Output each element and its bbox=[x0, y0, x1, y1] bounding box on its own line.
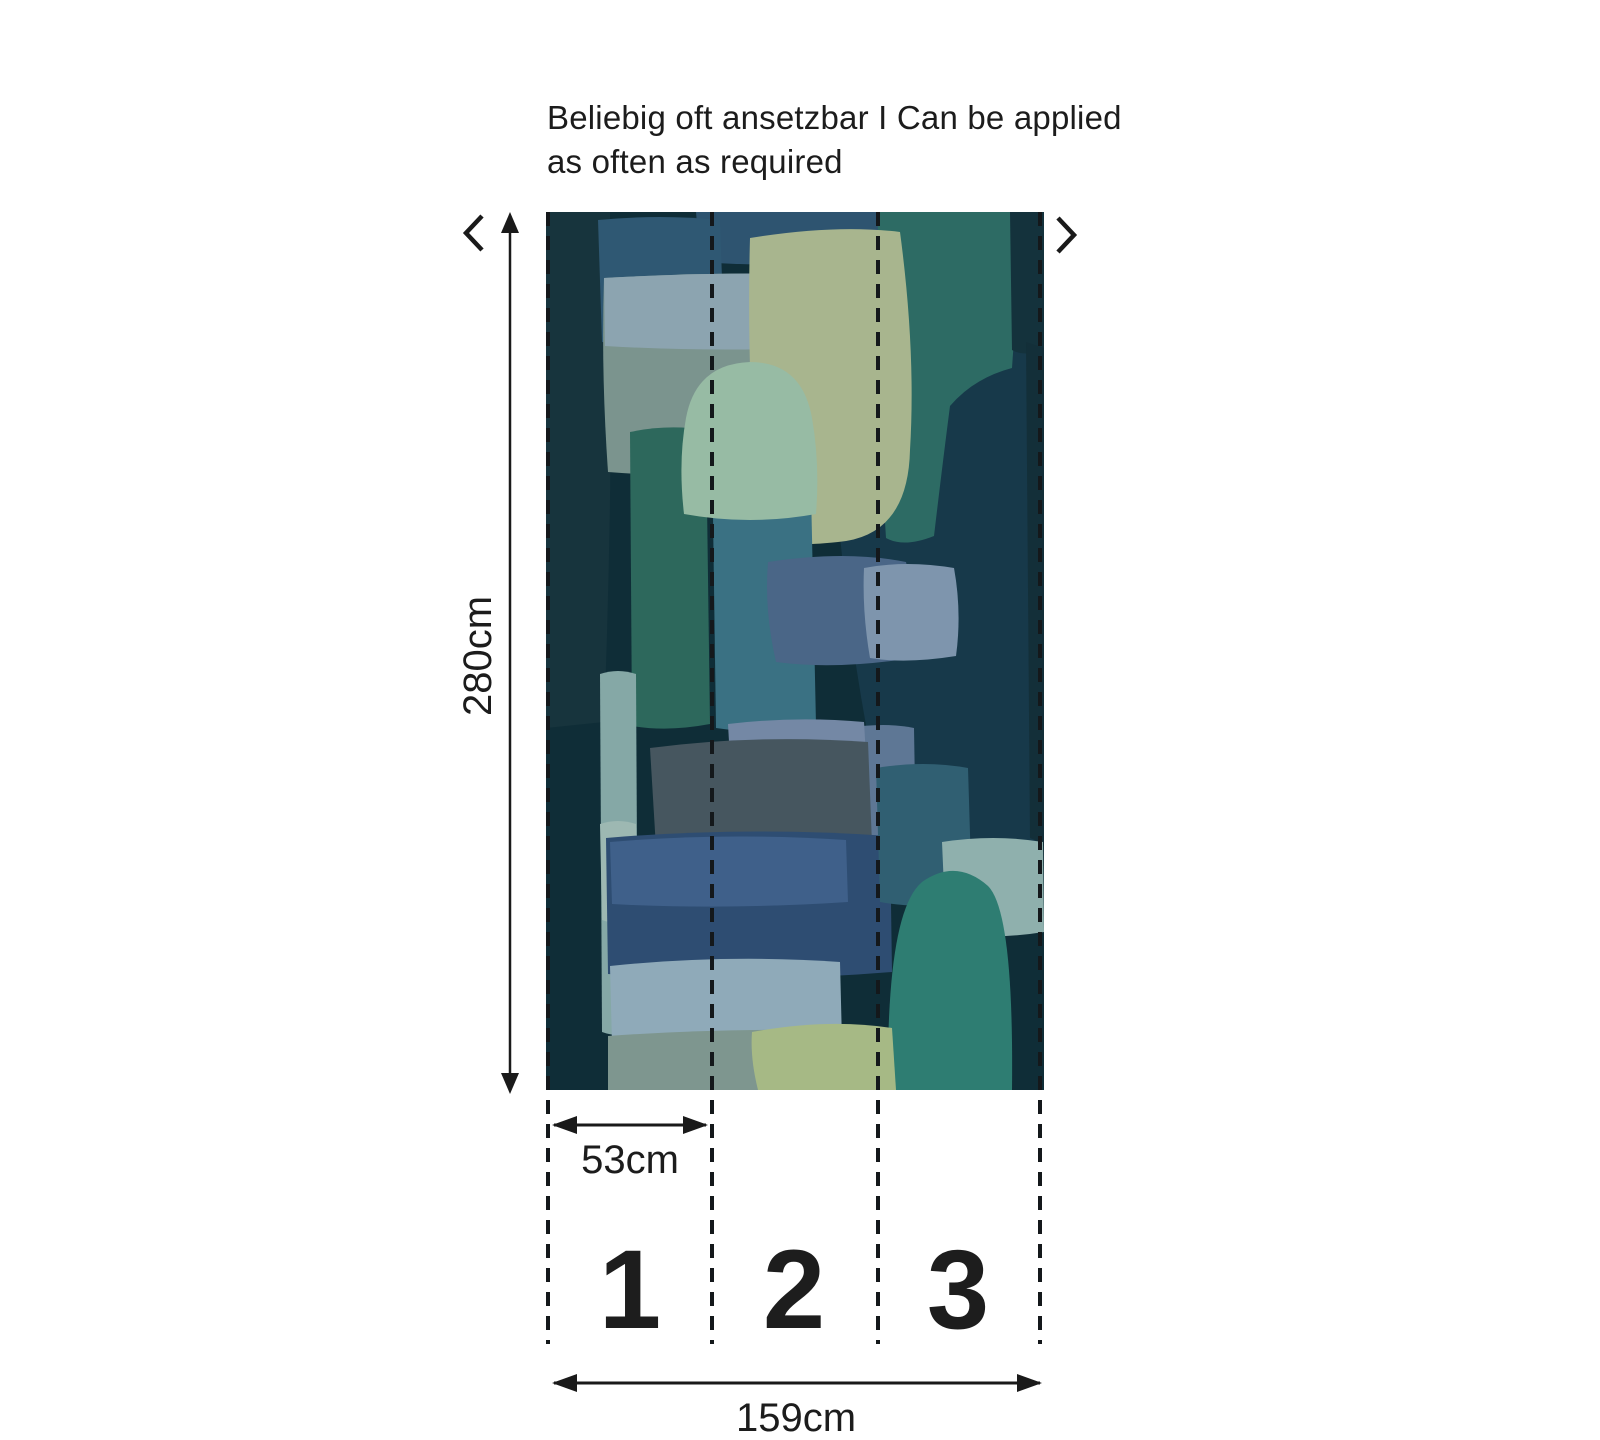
panel-divider-dashed-line-4 bbox=[1038, 212, 1042, 1344]
annotation-text: Beliebig oft ansetzbar I Can be applied … bbox=[547, 96, 1122, 184]
chevron-left-icon bbox=[460, 211, 486, 255]
mural-shape bbox=[752, 1024, 896, 1090]
panel-width-dimension-label: 53cm bbox=[548, 1138, 712, 1183]
height-dimension-label: 280cm bbox=[456, 576, 500, 736]
wallpaper-dimension-diagram: Beliebig oft ansetzbar I Can be applied … bbox=[0, 0, 1600, 1440]
height-dimension-arrow bbox=[497, 210, 523, 1096]
panel-number-3: 3 bbox=[876, 1238, 1040, 1348]
mural-shape bbox=[681, 362, 817, 520]
total-width-dimension-arrow bbox=[550, 1369, 1044, 1397]
panel-width-dimension-arrow bbox=[550, 1111, 710, 1139]
panel-number-1: 1 bbox=[548, 1238, 712, 1348]
panel-number-2: 2 bbox=[712, 1238, 876, 1348]
annotation-line-1: Beliebig oft ansetzbar I Can be applied bbox=[547, 96, 1122, 140]
mural-abstract-shapes bbox=[546, 212, 1044, 1090]
total-width-dimension-label: 159cm bbox=[548, 1396, 1044, 1440]
wallpaper-mural-image bbox=[546, 212, 1044, 1090]
mural-shape bbox=[610, 836, 848, 906]
chevron-right-icon bbox=[1054, 213, 1080, 257]
panel-divider-dashed-line-3 bbox=[876, 212, 880, 1344]
annotation-line-2: as often as required bbox=[547, 140, 1122, 184]
